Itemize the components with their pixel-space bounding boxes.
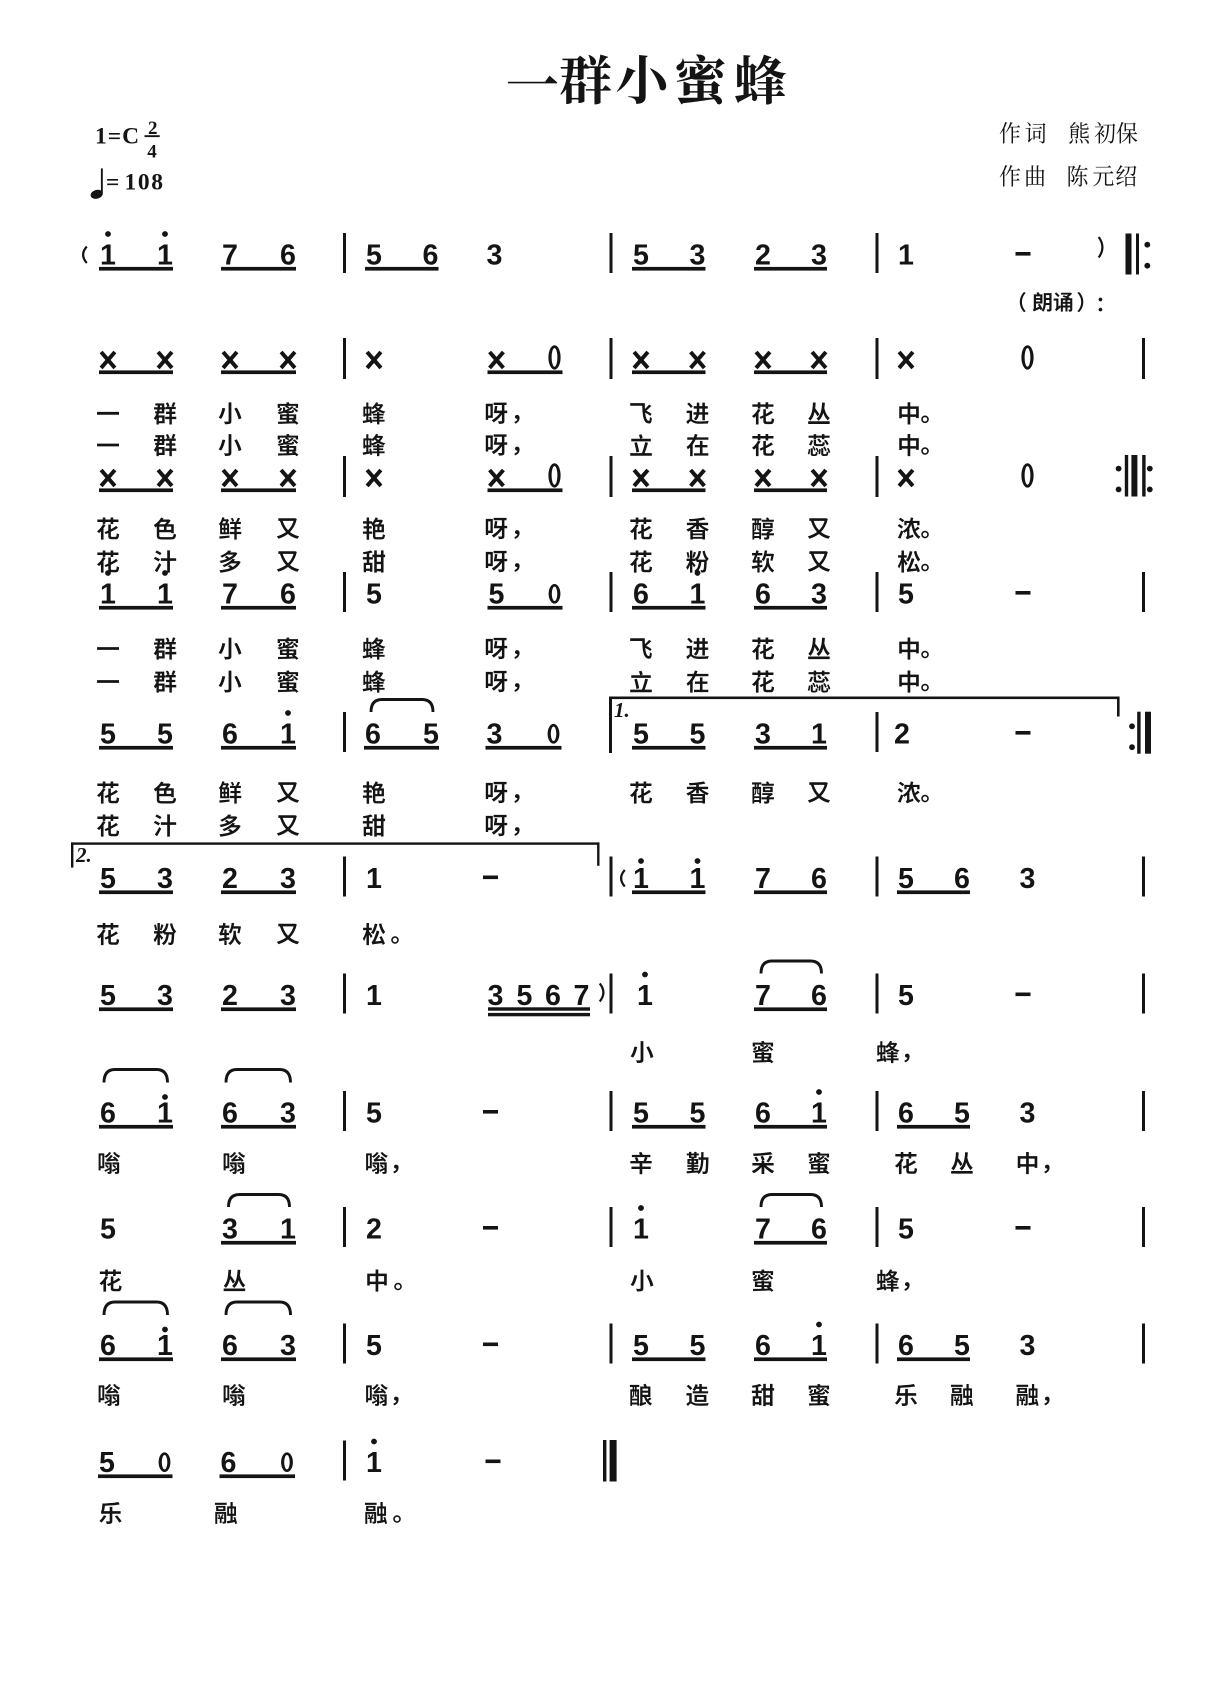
svg-text:1: 1 <box>280 719 296 751</box>
svg-text:3: 3 <box>1020 1098 1036 1130</box>
svg-text:5: 5 <box>366 240 382 272</box>
svg-text:3: 3 <box>280 863 296 895</box>
svg-text:7: 7 <box>574 980 590 1012</box>
svg-text:4: 4 <box>147 141 157 162</box>
svg-text:3: 3 <box>487 719 503 751</box>
svg-text:5: 5 <box>366 579 382 611</box>
svg-text:6: 6 <box>811 863 827 895</box>
svg-text:6: 6 <box>545 980 561 1012</box>
svg-text:6: 6 <box>221 1447 237 1479</box>
svg-text:1: 1 <box>637 980 653 1012</box>
svg-text:5: 5 <box>954 1098 970 1130</box>
svg-text:7: 7 <box>222 579 238 611</box>
svg-text:1: 1 <box>633 863 649 895</box>
svg-text:3: 3 <box>811 240 827 272</box>
svg-text:7: 7 <box>755 1214 771 1246</box>
svg-text:6: 6 <box>365 719 381 751</box>
svg-text:3: 3 <box>488 980 504 1012</box>
svg-text:3: 3 <box>157 863 173 895</box>
svg-text:2: 2 <box>366 1214 382 1246</box>
svg-text:5: 5 <box>100 1214 116 1246</box>
svg-text:6: 6 <box>222 1098 238 1130</box>
svg-text:3: 3 <box>222 1214 238 1246</box>
svg-text:1: 1 <box>690 579 706 611</box>
svg-text:6: 6 <box>222 719 238 751</box>
svg-text:3: 3 <box>690 240 706 272</box>
svg-text:2: 2 <box>894 719 910 751</box>
svg-text:1: 1 <box>690 863 706 895</box>
svg-text:6: 6 <box>898 1098 914 1130</box>
svg-text:=: = <box>106 170 119 196</box>
svg-text:6: 6 <box>811 980 827 1012</box>
svg-text:7: 7 <box>755 863 771 895</box>
svg-text:2.: 2. <box>75 843 92 867</box>
svg-text:1: 1 <box>100 579 116 611</box>
svg-text:3: 3 <box>811 579 827 611</box>
svg-text:1: 1 <box>366 1447 382 1479</box>
svg-text:7: 7 <box>222 240 238 272</box>
svg-text:1=C: 1=C <box>95 124 140 150</box>
svg-text:6: 6 <box>633 579 649 611</box>
svg-text:5: 5 <box>898 863 914 895</box>
svg-text:5: 5 <box>517 980 533 1012</box>
svg-text:6: 6 <box>100 1330 116 1362</box>
svg-text:6: 6 <box>755 1330 771 1362</box>
svg-text:5: 5 <box>898 579 914 611</box>
svg-text:6: 6 <box>811 1214 827 1246</box>
svg-text:5: 5 <box>690 1098 706 1130</box>
svg-text:3: 3 <box>280 980 296 1012</box>
svg-text:5: 5 <box>157 719 173 751</box>
svg-text:5: 5 <box>690 1330 706 1362</box>
svg-text:5: 5 <box>633 719 649 751</box>
svg-text:3: 3 <box>157 980 173 1012</box>
svg-text:5: 5 <box>99 1447 115 1479</box>
svg-text:2: 2 <box>755 240 771 272</box>
svg-text:5: 5 <box>690 719 706 751</box>
svg-text:6: 6 <box>755 579 771 611</box>
svg-text:1: 1 <box>157 579 173 611</box>
svg-text:5: 5 <box>898 1214 914 1246</box>
svg-text:5: 5 <box>366 1330 382 1362</box>
svg-text:3: 3 <box>755 719 771 751</box>
svg-text:3: 3 <box>280 1098 296 1130</box>
svg-text:108: 108 <box>125 170 165 196</box>
svg-text:5: 5 <box>954 1330 970 1362</box>
svg-text:2: 2 <box>222 980 238 1012</box>
svg-text:3: 3 <box>280 1330 296 1362</box>
svg-text:5: 5 <box>423 719 439 751</box>
svg-text:6: 6 <box>423 240 439 272</box>
svg-text:6: 6 <box>755 1098 771 1130</box>
svg-text:6: 6 <box>898 1330 914 1362</box>
svg-text:6: 6 <box>222 1330 238 1362</box>
svg-text:1: 1 <box>157 1330 173 1362</box>
svg-text:1: 1 <box>280 1214 296 1246</box>
svg-text:1: 1 <box>633 1214 649 1246</box>
svg-text:5: 5 <box>100 719 116 751</box>
svg-text:6: 6 <box>954 863 970 895</box>
svg-text:3: 3 <box>1020 1330 1036 1362</box>
svg-text:5: 5 <box>633 1330 649 1362</box>
svg-text:5: 5 <box>100 863 116 895</box>
svg-text:6: 6 <box>280 240 296 272</box>
svg-text:1: 1 <box>898 240 914 272</box>
svg-text:5: 5 <box>633 1098 649 1130</box>
svg-text:5: 5 <box>100 980 116 1012</box>
svg-text:3: 3 <box>1020 863 1036 895</box>
svg-text:1: 1 <box>811 1098 827 1130</box>
svg-text:1: 1 <box>366 980 382 1012</box>
svg-text:7: 7 <box>755 980 771 1012</box>
svg-text:1: 1 <box>157 240 173 272</box>
svg-text:2: 2 <box>222 863 238 895</box>
svg-text:3: 3 <box>487 240 503 272</box>
svg-text:6: 6 <box>100 1098 116 1130</box>
svg-text:1: 1 <box>100 240 116 272</box>
svg-text:1: 1 <box>366 863 382 895</box>
svg-text:1.: 1. <box>614 698 630 722</box>
svg-text:6: 6 <box>280 579 296 611</box>
svg-text:5: 5 <box>366 1098 382 1130</box>
svg-text:1: 1 <box>811 719 827 751</box>
svg-text:1: 1 <box>811 1330 827 1362</box>
svg-text:5: 5 <box>633 240 649 272</box>
svg-text:1: 1 <box>157 1098 173 1130</box>
svg-text:5: 5 <box>489 579 505 611</box>
svg-text:5: 5 <box>898 980 914 1012</box>
